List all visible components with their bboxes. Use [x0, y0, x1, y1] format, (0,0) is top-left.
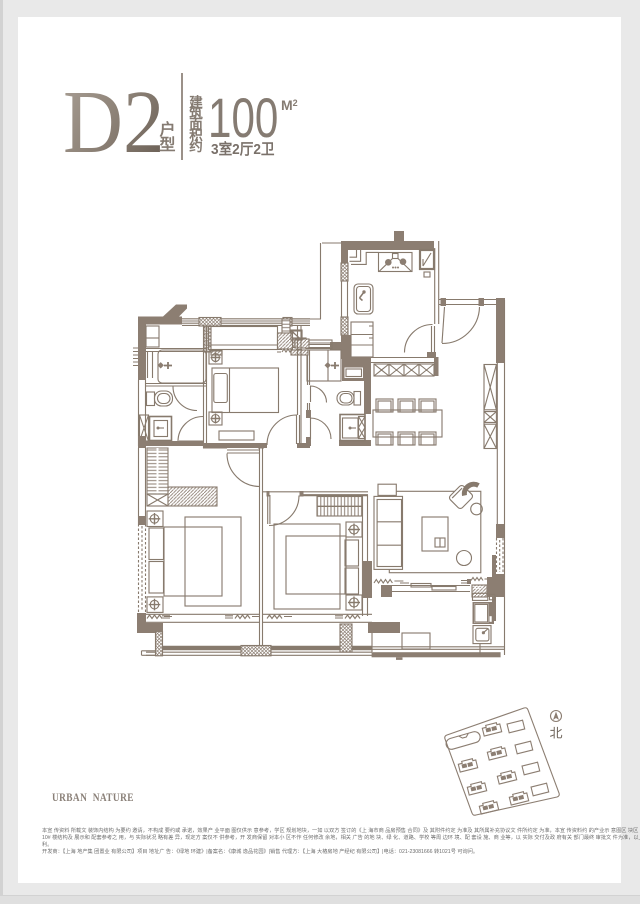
svg-text:北: 北: [549, 725, 562, 740]
